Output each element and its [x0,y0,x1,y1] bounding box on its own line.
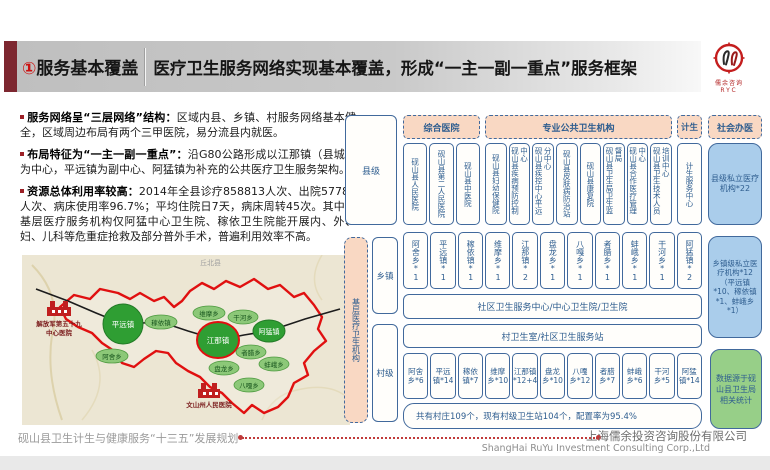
town-label: 江那镇 [207,335,230,345]
township-facility-box: 阿舍乡*1 [403,232,428,289]
section-label: ①服务基本覆盖 [17,54,145,79]
village-facility-box: 蚌峨乡*6 [622,353,647,399]
county-facility-box: 砚山县第二人民医院 [429,143,453,225]
town-jiangna: 江那镇 [197,322,239,358]
county-facility-box: 砚山县疾病预防控制中心 [509,143,531,225]
county-facility-box: 砚山县人民医院 [403,143,427,225]
town-label: 蚌峨乡 [264,360,284,369]
group-header-public-health: 专业公共卫生机构 [485,115,672,139]
village-facility-box: 平远镇*14 [430,353,455,399]
township-facility-box: 八嘎乡*1 [567,232,592,289]
township-facility-box: 者腊乡*1 [595,232,620,289]
town-ashe: 阿舍乡 [96,349,128,363]
hospital-west-label-1: 解放军第五十九 [36,319,82,328]
county-map: 丘北县 解放军第五十九 中心医院 [22,255,350,425]
level-label-township: 乡镇 [372,237,398,314]
bullet-lead: 资源总体利用率较高： [27,185,139,198]
town-label: 干河乡 [233,314,253,322]
village-facility-box: 者腊乡*7 [595,353,620,399]
town-panlong: 盘龙乡 [209,361,239,375]
logo-mark-icon [709,42,749,76]
village-coverage-note: 共有村庄109个，现有村级卫生站104个，配置率为95.4% [403,403,702,429]
town-label: 阿猛镇 [259,327,280,336]
village-facility-box: 维摩乡*10 [485,353,510,399]
town-baga: 八嘎乡 [234,378,264,392]
village-facility-box: 稼依镇*7 [458,353,483,399]
village-facility-box: 阿猛镇*14 [677,353,702,399]
level-label-village: 村级 [372,324,398,422]
level-label-county: 县级 [345,115,397,225]
town-label: 阿舍乡 [102,352,122,361]
town-zhela: 者腊乡 [236,345,266,359]
village-band-clinics: 村卫生室/社区卫生服务站 [403,324,702,348]
county-facility-box: 砚山县皮肤病防治站 [556,143,578,225]
county-private-facilities-box: 县级私立医疗机构*22 [708,143,762,225]
county-facility-box: 砚山县疾控中心平远分中心 [532,143,554,225]
footer-dotted-divider [242,437,598,439]
county-facility-box: 砚山县卫生局卫生监督局 [603,143,625,225]
town-label: 维摩乡 [199,309,219,318]
township-facility-box: 干河乡*1 [649,232,674,289]
map-canvas: 丘北县 解放军第五十九 中心医院 [22,255,350,425]
county-facility-box: 砚山县卫生技术人员培训中心 [650,143,672,225]
header-accent-stripe [4,41,17,92]
township-facility-box: 蚌峨乡*1 [622,232,647,289]
bottom-gray-band [0,456,770,470]
bullet-marker [20,152,24,156]
hospital-west-label-2: 中心医院 [46,328,73,337]
footer-divider-dot [238,435,243,440]
level-label-primary-institutions: 基层医疗卫生机构 [344,237,368,423]
township-facility-box: 盘龙乡*1 [540,232,565,289]
town-label: 稼依镇 [151,318,171,327]
bullet-utilization: 资源总体利用率较高：2014年全县诊疗858813人次、出院57781人次、病床… [20,184,356,244]
village-facility-box: 八嘎乡*12 [567,353,592,399]
village-facility-box: 盘龙乡*10 [540,353,565,399]
village-facility-box: 江那镇*12+4 [512,353,537,399]
township-private-facilities-box: 乡镇级私立医疗机构*12（平远镇*10、稼依镇*1、蚌峨乡*1） [708,236,762,338]
county-public-health-row: 砚山县妇幼保健院砚山县疾病预防控制中心砚山县疾控中心平远分中心砚山县皮肤病防治站… [485,143,672,225]
township-facility-box: 稼依镇*1 [458,232,483,289]
section-text: 服务基本覆盖 [36,59,138,79]
town-label: 平远镇 [112,319,135,329]
town-label: 者腊乡 [241,349,261,357]
bullet-network: 服务网络呈“三层网络”结构：区域内县、乡镇、村服务网络基本健全，区域周边布局有两… [20,110,356,140]
town-label: 盘龙乡 [214,364,234,373]
county-facility-box: 计生服务中心 [677,143,702,225]
hospital-south-label: 文山州人民医院 [185,400,232,409]
bullet-marker [20,115,24,119]
township-facility-box: 阿猛镇*2 [677,232,702,289]
group-header-social-medical: 社会办医 [708,115,762,139]
footer-company-cn: 上海儒余投资咨询股份有限公司 [586,428,747,444]
township-facility-box: 江那镇*2 [512,232,537,289]
village-facility-box: 干河乡*5 [649,353,674,399]
bullet-marker [20,189,24,193]
county-family-planning-row: 计生服务中心 [677,143,702,225]
bullet-list: 服务网络呈“三层网络”结构：区域内县、乡镇、村服务网络基本健全，区域周边布局有两… [20,110,356,251]
map-region-label: 丘北县 [200,258,221,267]
data-source-note: 数据源于砚山县卫生局相关统计 [710,349,762,429]
logo-name-en: RYC [709,87,749,94]
town-pingyuan: 平远镇 [103,304,143,344]
county-general-hospitals-row: 砚山县人民医院砚山县第二人民医院砚山县中医院 [403,143,480,225]
village-facility-box: 阿舍乡*6 [403,353,428,399]
township-row: 阿舍乡*1平远镇*1稼依镇*1维摩乡*1江那镇*2盘龙乡*1八嘎乡*1者腊乡*1… [403,232,702,289]
bullet-layout: 布局特征为“一主一副一重点”：沿G80公路形成以江那镇（县城）为中心，平远镇为副… [20,147,356,177]
county-facility-box: 砚山县合作医疗管理中心 [627,143,649,225]
section-number: ① [22,59,36,79]
town-ganhe: 干河乡 [228,310,258,324]
town-bange: 蚌峨乡 [259,357,289,371]
town-ameng: 阿猛镇 [253,320,285,342]
footer-plan-title: 砚山县卫生计生与健康服务“十三五”发展规划 [18,430,238,446]
town-jiayi: 稼依镇 [145,315,177,329]
logo-name-cn: 儒余咨询 [709,80,749,87]
village-row: 阿舍乡*6平远镇*14稼依镇*7维摩乡*10江那镇*12+4盘龙乡*10八嘎乡*… [403,353,702,399]
bullet-lead: 布局特征为“一主一副一重点”： [27,148,188,161]
slide: ①服务基本覆盖 医疗卫生服务网络实现基本覆盖，形成“一主一副一重点”服务框架 儒… [0,0,770,470]
hospital-west-icon [47,301,71,316]
township-band-health-centers: 社区卫生服务中心/中心卫生院/卫生院 [403,294,702,319]
town-weimo: 维摩乡 [193,306,225,320]
group-header-family-planning: 计生 [677,115,702,139]
header-bar: ①服务基本覆盖 医疗卫生服务网络实现基本覆盖，形成“一主一副一重点”服务框架 [17,41,701,92]
company-logo: 儒余咨询 RYC [709,42,749,94]
county-boundary [60,279,326,413]
page-title: 医疗卫生服务网络实现基本覆盖，形成“一主一副一重点”服务框架 [146,55,637,79]
bullet-lead: 服务网络呈“三层网络”结构： [27,111,177,124]
county-facility-box: 砚山县中医院 [456,143,480,225]
township-facility-box: 平远镇*1 [430,232,455,289]
county-facility-box: 砚山县康复院 [580,143,602,225]
town-label: 八嘎乡 [239,382,259,390]
township-facility-box: 维摩乡*1 [485,232,510,289]
footer-company-en: ShangHai RuYu Investment Consulting Corp… [482,443,710,454]
county-facility-box: 砚山县妇幼保健院 [485,143,507,225]
group-header-general-hospitals: 综合医院 [403,115,480,139]
